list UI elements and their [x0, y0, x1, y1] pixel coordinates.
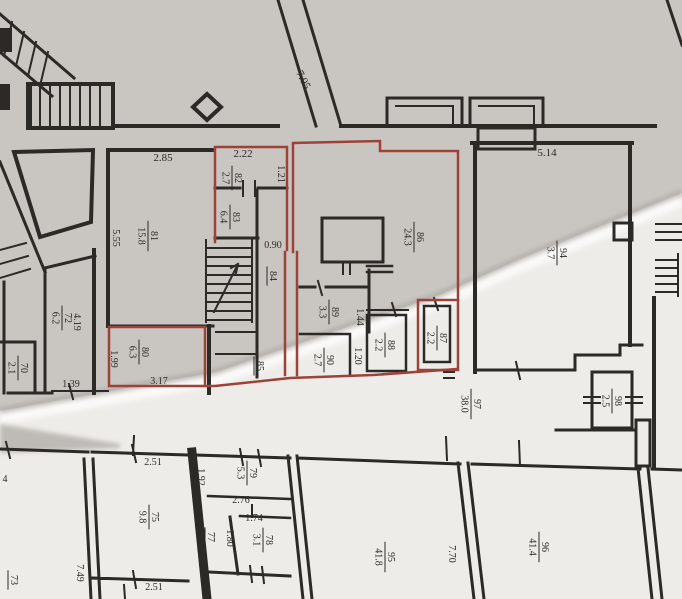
- dimension-text: 2.51: [144, 457, 162, 468]
- dimension-label-2.51: 2.51: [144, 457, 162, 468]
- plan-svg: 702.1726.273759.877783.1795.3806.38115.8…: [0, 0, 682, 599]
- room-area: 41.4: [527, 538, 538, 556]
- dimension-label-2.22: 2.22: [233, 148, 252, 160]
- dimension-text: 4: [3, 474, 8, 485]
- dimension-label-1.80: 1.80: [224, 529, 235, 547]
- dimension-text: 2.76: [232, 495, 250, 506]
- dimension-text: 1.92: [195, 468, 206, 486]
- room-number: 82: [232, 173, 243, 183]
- dimension-label-7.49: 7.49: [74, 564, 85, 582]
- room-area: 41.8: [373, 548, 384, 566]
- room-number: 87: [437, 333, 448, 343]
- room-area: 24.3: [402, 228, 413, 246]
- dimension-label-2.51: 2.51: [145, 582, 163, 593]
- room-area: 2.2: [425, 332, 436, 345]
- room-area: 3.7: [545, 247, 556, 260]
- wall-block: [0, 84, 10, 110]
- dimension-text: 2.22: [233, 148, 252, 160]
- dimension-label-5.14: 5.14: [537, 147, 557, 159]
- dimension-label-1.20: 1.20: [352, 347, 363, 365]
- room-area: 2.5: [600, 395, 611, 408]
- room-number: 97: [471, 399, 482, 409]
- dimension-text: 1.20: [352, 347, 363, 365]
- dimension-label-3.17: 3.17: [150, 376, 168, 387]
- room-number: 84: [267, 271, 278, 281]
- dimension-label-2.76: 2.76: [232, 495, 250, 506]
- dimension-text: 1.99: [108, 350, 119, 368]
- room-area: 15.8: [136, 227, 147, 245]
- dimension-label-7.70: 7.70: [446, 545, 457, 563]
- floorplan-photo: 702.1726.273759.877783.1795.3806.38115.8…: [0, 0, 682, 599]
- room-area: 2.1: [6, 362, 17, 375]
- room-number: 83: [230, 212, 241, 222]
- dimension-label-4.19: 4.19: [71, 313, 82, 331]
- dimension-text: 1.74: [245, 513, 263, 524]
- dimension-text: 1.80: [224, 529, 235, 547]
- dimension-text: 5.55: [110, 229, 121, 247]
- dimension-text: 0.90: [264, 240, 282, 251]
- room-number: 81: [148, 231, 159, 241]
- dimension-label-1.92: 1.92: [195, 468, 206, 486]
- room-number: 88: [385, 340, 396, 350]
- dimension-text: 1.39: [62, 379, 80, 390]
- dimension-text: 2.85: [153, 152, 173, 164]
- dimension-label-1.99: 1.99: [108, 350, 119, 368]
- room-area: 5.3: [235, 467, 246, 480]
- room-area: 2.7: [312, 354, 323, 367]
- room-number: 78: [263, 535, 274, 545]
- room-area: 6.2: [50, 312, 61, 325]
- room-area: 3.3: [317, 306, 328, 319]
- dimension-text: 1.21: [275, 165, 286, 183]
- dimension-label-0.90: 0.90: [264, 240, 282, 251]
- dimension-label-1.44: 1.44: [354, 308, 365, 326]
- dimension-text: 3.17: [150, 376, 168, 387]
- room-area: 38.0: [459, 395, 470, 413]
- room-number: 70: [18, 363, 29, 373]
- room-number: 96: [539, 542, 550, 552]
- dimension-label-1.39: 1.39: [62, 379, 80, 390]
- room-number: 73: [8, 575, 19, 585]
- room-area: 6.3: [127, 346, 138, 359]
- room-number: 90: [324, 355, 335, 365]
- dimension-label-1.74: 1.74: [245, 513, 263, 524]
- dimension-text: 4.19: [71, 313, 82, 331]
- room-number: 85: [254, 361, 265, 371]
- room-number: 86: [414, 232, 425, 242]
- room-number: 79: [247, 468, 258, 478]
- room-area: 6.4: [218, 211, 229, 224]
- dimension-label-4: 4: [3, 474, 8, 485]
- dimension-text: 7.49: [74, 564, 85, 582]
- room-number: 89: [329, 307, 340, 317]
- dimension-text: 2.51: [145, 582, 163, 593]
- room-area: 3.1: [251, 534, 262, 547]
- dimension-text: 7.70: [446, 545, 457, 563]
- room-number: 77: [205, 532, 216, 542]
- room-number: 94: [557, 248, 568, 258]
- dimension-label-1.21: 1.21: [275, 165, 286, 183]
- room-number: 98: [612, 396, 623, 406]
- room-number: 95: [385, 552, 396, 562]
- dimension-text: 5.14: [537, 147, 557, 159]
- room-number: 75: [149, 512, 160, 522]
- dimension-label-5.55: 5.55: [110, 229, 121, 247]
- dimension-label-2.85: 2.85: [153, 152, 173, 164]
- room-area: 9.8: [137, 511, 148, 524]
- room-area: 2.2: [373, 339, 384, 352]
- dimension-text: 1.44: [354, 308, 365, 326]
- room-area: 2.7: [220, 172, 231, 185]
- room-number: 80: [139, 347, 150, 357]
